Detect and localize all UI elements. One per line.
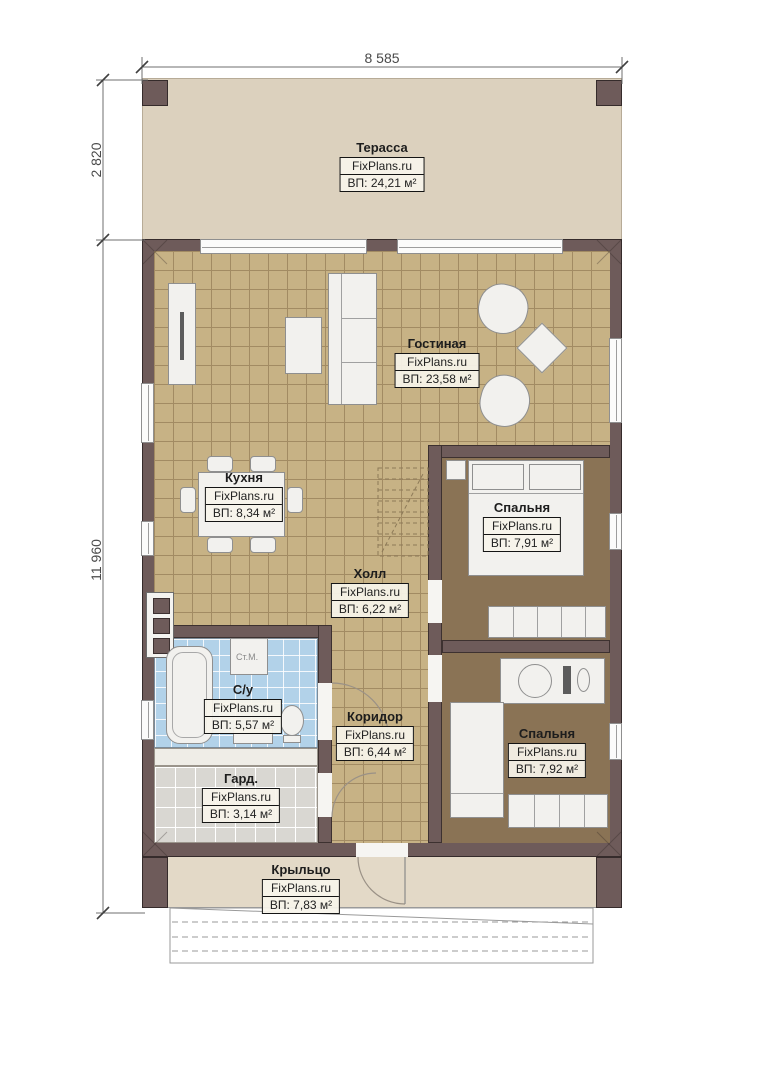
room-label-wardrobe: Гард. FixPlans.ru ВП: 3,14 м² [202,771,280,823]
room-name: Спальня [508,726,586,741]
wardrobe-divider [585,607,586,637]
room-label-box: FixPlans.ru ВП: 5,57 м² [204,699,282,734]
room-label-box: FixPlans.ru ВП: 7,83 м² [262,879,340,914]
room-label-box: FixPlans.ru ВП: 6,44 м² [336,726,414,761]
room-brand: FixPlans.ru [206,488,282,505]
room-brand: FixPlans.ru [484,518,560,535]
speaker-icon [577,668,590,692]
room-name: Терасса [340,140,425,155]
dining-chair [207,537,233,553]
room-brand: FixPlans.ru [396,354,479,371]
wardrobe-divider [584,795,585,827]
door-entry [356,843,408,857]
coffee-table [285,317,322,374]
dimension-width-label: 8 585 [364,50,399,66]
room-label-terrace: Терасса FixPlans.ru ВП: 24,21 м² [340,140,425,192]
room-label-box: FixPlans.ru ВП: 7,92 м² [508,743,586,778]
monitor-icon [563,666,571,694]
desk-chair [518,664,552,698]
room-area: ВП: 6,44 м² [337,744,413,760]
room-name: Гард. [202,771,280,786]
room-brand: FixPlans.ru [337,727,413,744]
door-wardrobe [318,773,332,817]
room-area: ВП: 3,14 м² [203,806,279,822]
sofa-backrest-line [341,274,342,404]
porch-floor [168,857,596,908]
room-label-bedroom2: Спальня FixPlans.ru ВП: 7,92 м² [508,726,586,778]
bathroom-counter-strip [154,748,318,766]
door-bedroom2 [428,655,442,702]
room-brand: FixPlans.ru [263,880,339,897]
bed-single [450,702,504,818]
room-area: ВП: 7,91 м² [484,535,560,551]
window-top-right [397,239,563,254]
door-bathroom [318,683,332,740]
door-bedroom1 [428,580,442,623]
partition-living-bedroom1 [428,445,610,458]
toilet-bowl [280,705,304,736]
porch-wall-left [142,857,168,908]
room-label-kitchen: Кухня FixPlans.ru ВП: 8,34 м² [205,470,283,522]
wardrobe-divider [561,607,562,637]
room-label-box: FixPlans.ru ВП: 3,14 м² [202,788,280,823]
pillow [529,464,581,490]
room-area: ВП: 7,83 м² [263,897,339,913]
room-label-porch: Крыльцо FixPlans.ru ВП: 7,83 м² [262,862,340,914]
partition-hall-bedrooms [428,445,442,843]
room-label-bedroom1: Спальня FixPlans.ru ВП: 7,91 м² [483,500,561,552]
room-label-corridor: Коридор FixPlans.ru ВП: 6,44 м² [336,709,414,761]
room-area: ВП: 23,58 м² [396,371,479,387]
terrace-post-left [142,80,168,106]
room-label-living: Гостиная FixPlans.ru ВП: 23,58 м² [395,336,480,388]
nightstand [446,460,466,480]
room-name: Коридор [336,709,414,724]
window-left-bathroom [141,700,154,740]
window-left-living [141,383,154,443]
sofa-cushion-line [341,318,376,319]
chimney-block [146,592,174,658]
dining-chair [287,487,303,513]
floor-plan-canvas: Ст.М. [0,0,763,1080]
wardrobe-divider [537,607,538,637]
wardrobe-unit-bedroom1 [488,606,606,638]
room-name: Крыльцо [262,862,340,877]
sofa-cushion-line [341,362,376,363]
dimension-house-depth-label: 11 960 [88,500,104,620]
washing-machine-label: Ст.М. [236,652,258,662]
sofa [328,273,377,405]
room-brand: FixPlans.ru [205,700,281,717]
window-right-bedroom1 [609,513,622,550]
window-right-bedroom2 [609,723,622,760]
wardrobe-unit-bedroom2 [508,794,608,828]
room-area: ВП: 6,22 м² [332,601,408,617]
room-area: ВП: 5,57 м² [205,717,281,733]
bathtub-inner [172,652,207,738]
room-name: Спальня [483,500,561,515]
room-brand: FixPlans.ru [341,158,424,175]
room-label-hall: Холл FixPlans.ru ВП: 6,22 м² [331,566,409,618]
dining-chair [250,537,276,553]
room-label-bathroom: С/у FixPlans.ru ВП: 5,57 м² [204,682,282,734]
room-brand: FixPlans.ru [332,584,408,601]
room-brand: FixPlans.ru [509,744,585,761]
room-area: ВП: 8,34 м² [206,505,282,521]
room-area: ВП: 7,92 м² [509,761,585,777]
room-label-box: FixPlans.ru ВП: 7,91 м² [483,517,561,552]
bed-blanket-line [469,493,583,494]
bed-blanket-line [451,793,503,794]
room-label-box: FixPlans.ru ВП: 6,22 м² [331,583,409,618]
room-label-box: FixPlans.ru ВП: 24,21 м² [340,157,425,192]
room-name: Холл [331,566,409,581]
room-name: Кухня [205,470,283,485]
window-left-kitchen [141,521,154,556]
pillow [472,464,524,490]
room-area: ВП: 24,21 м² [341,175,424,191]
room-brand: FixPlans.ru [203,789,279,806]
window-right-living [609,338,622,423]
dimension-terrace-depth-label: 2 820 [88,115,104,205]
room-label-box: FixPlans.ru ВП: 23,58 м² [395,353,480,388]
room-name: С/у [204,682,282,697]
wardrobe-divider [534,795,535,827]
wardrobe-divider [513,607,514,637]
porch-wall-right [596,857,622,908]
partition-kitchen-bathroom [154,625,332,638]
partition-bedroom1-bedroom2 [442,640,610,653]
toilet-tank [283,735,301,743]
wardrobe-divider [559,795,560,827]
room-label-box: FixPlans.ru ВП: 8,34 м² [205,487,283,522]
room-name: Гостиная [395,336,480,351]
tv-icon [180,312,184,360]
terrace-post-right [596,80,622,106]
dining-chair [180,487,196,513]
porch-steps [170,908,593,963]
window-top-left [200,239,367,254]
chimney-flue-1 [153,598,170,614]
chimney-flue-2 [153,618,170,634]
